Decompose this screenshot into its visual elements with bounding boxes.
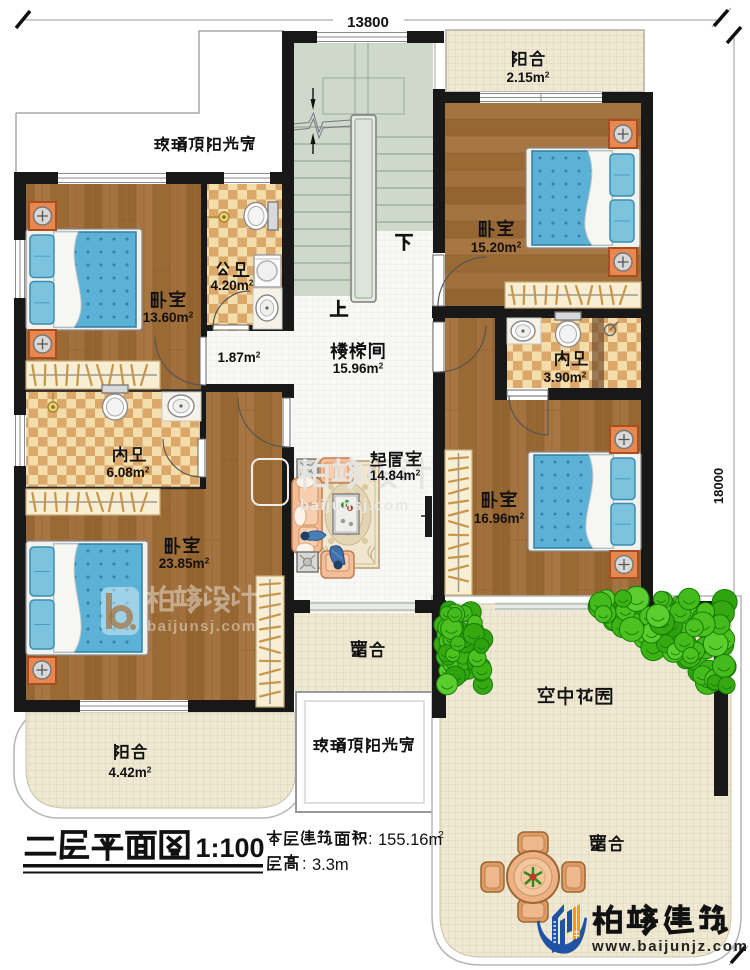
svg-text::: : (302, 855, 307, 873)
svg-text:15.96m2: 15.96m2 (333, 361, 384, 377)
svg-text:155.16m: 155.16m (378, 831, 442, 849)
svg-text:13.60m2: 13.60m2 (143, 310, 194, 326)
svg-text:13800: 13800 (347, 14, 389, 31)
svg-text:3.90m2: 3.90m2 (544, 370, 587, 386)
svg-text:2: 2 (438, 829, 444, 841)
svg-text:4.20m2: 4.20m2 (211, 278, 254, 294)
svg-text::: : (368, 830, 373, 848)
svg-text:18000: 18000 (711, 468, 726, 504)
svg-text:baijunsj.com: baijunsj.com (300, 497, 410, 514)
svg-text:4.42m2: 4.42m2 (109, 765, 152, 781)
svg-text:1.87m2: 1.87m2 (218, 350, 261, 366)
svg-text:www.baijunjz.com: www.baijunjz.com (591, 938, 749, 955)
svg-text:2.15m2: 2.15m2 (507, 70, 550, 86)
svg-text:baijunsj.com: baijunsj.com (147, 618, 257, 635)
svg-text:23.85m2: 23.85m2 (159, 556, 210, 572)
svg-text:16.96m2: 16.96m2 (474, 511, 525, 527)
svg-text:15.20m2: 15.20m2 (471, 240, 522, 256)
svg-text:6.08m2: 6.08m2 (107, 465, 150, 481)
svg-text:3.3m: 3.3m (312, 856, 349, 874)
svg-text:1:100: 1:100 (195, 833, 264, 863)
svg-text:14.84m2: 14.84m2 (370, 468, 421, 484)
